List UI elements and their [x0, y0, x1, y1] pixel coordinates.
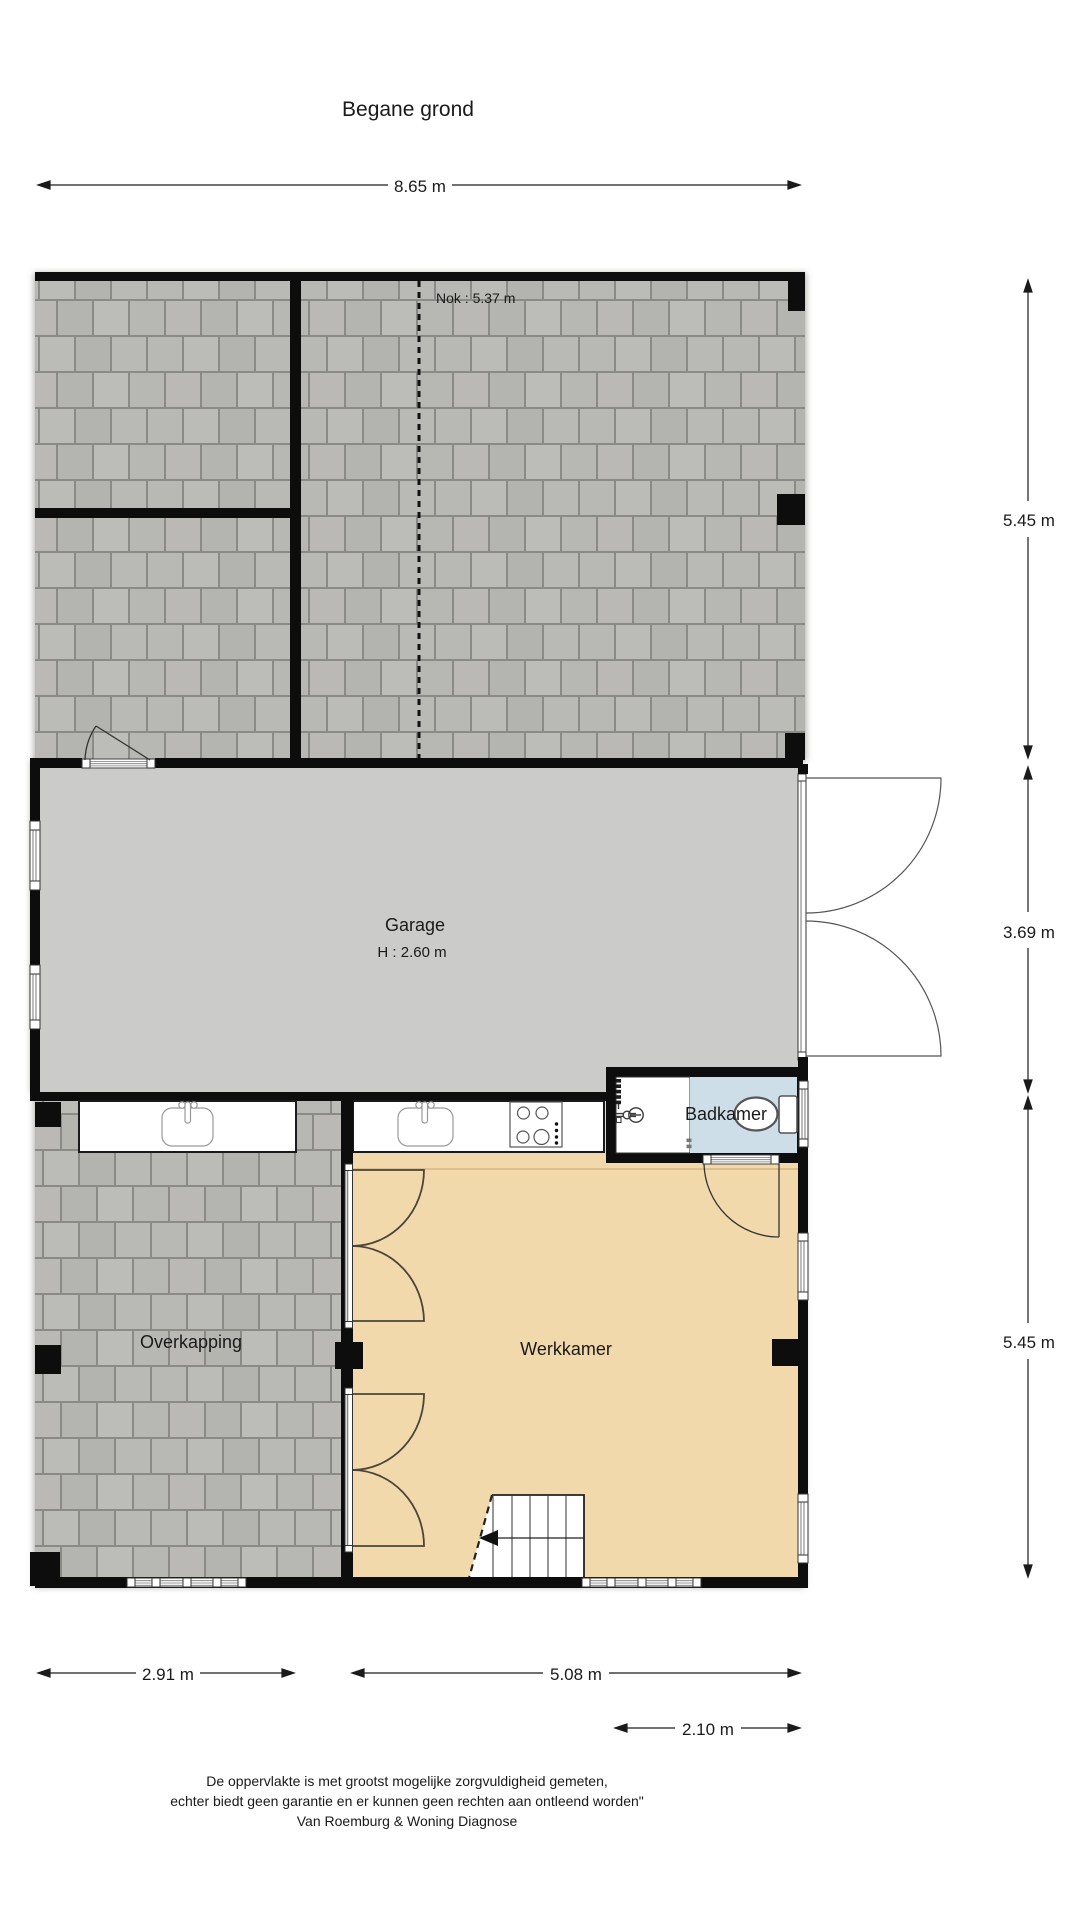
svg-text:5.08 m: 5.08 m [550, 1665, 602, 1684]
svg-text:8.65 m: 8.65 m [394, 177, 446, 196]
svg-text:Begane grond: Begane grond [342, 98, 474, 121]
svg-text:5.45 m: 5.45 m [1003, 1333, 1055, 1352]
svg-text:Nok : 5.37 m: Nok : 5.37 m [436, 290, 515, 306]
svg-text:echter biedt geen garantie en: echter biedt geen garantie en er kunnen … [170, 1793, 644, 1809]
svg-text:Werkkamer: Werkkamer [520, 1339, 612, 1359]
svg-text:De oppervlakte is met grootst: De oppervlakte is met grootst mogelijke … [206, 1773, 608, 1789]
svg-text:2.10 m: 2.10 m [682, 1720, 734, 1739]
svg-text:Overkapping: Overkapping [140, 1332, 242, 1352]
svg-text:Garage: Garage [385, 915, 445, 935]
svg-text:3.69 m: 3.69 m [1003, 923, 1055, 942]
svg-text:Van Roemburg & Woning Diagnose: Van Roemburg & Woning Diagnose [297, 1813, 518, 1829]
svg-text:Badkamer: Badkamer [685, 1104, 767, 1124]
svg-text:2.91 m: 2.91 m [142, 1665, 194, 1684]
svg-text:5.45 m: 5.45 m [1003, 511, 1055, 530]
svg-text:H : 2.60 m: H : 2.60 m [377, 944, 446, 961]
